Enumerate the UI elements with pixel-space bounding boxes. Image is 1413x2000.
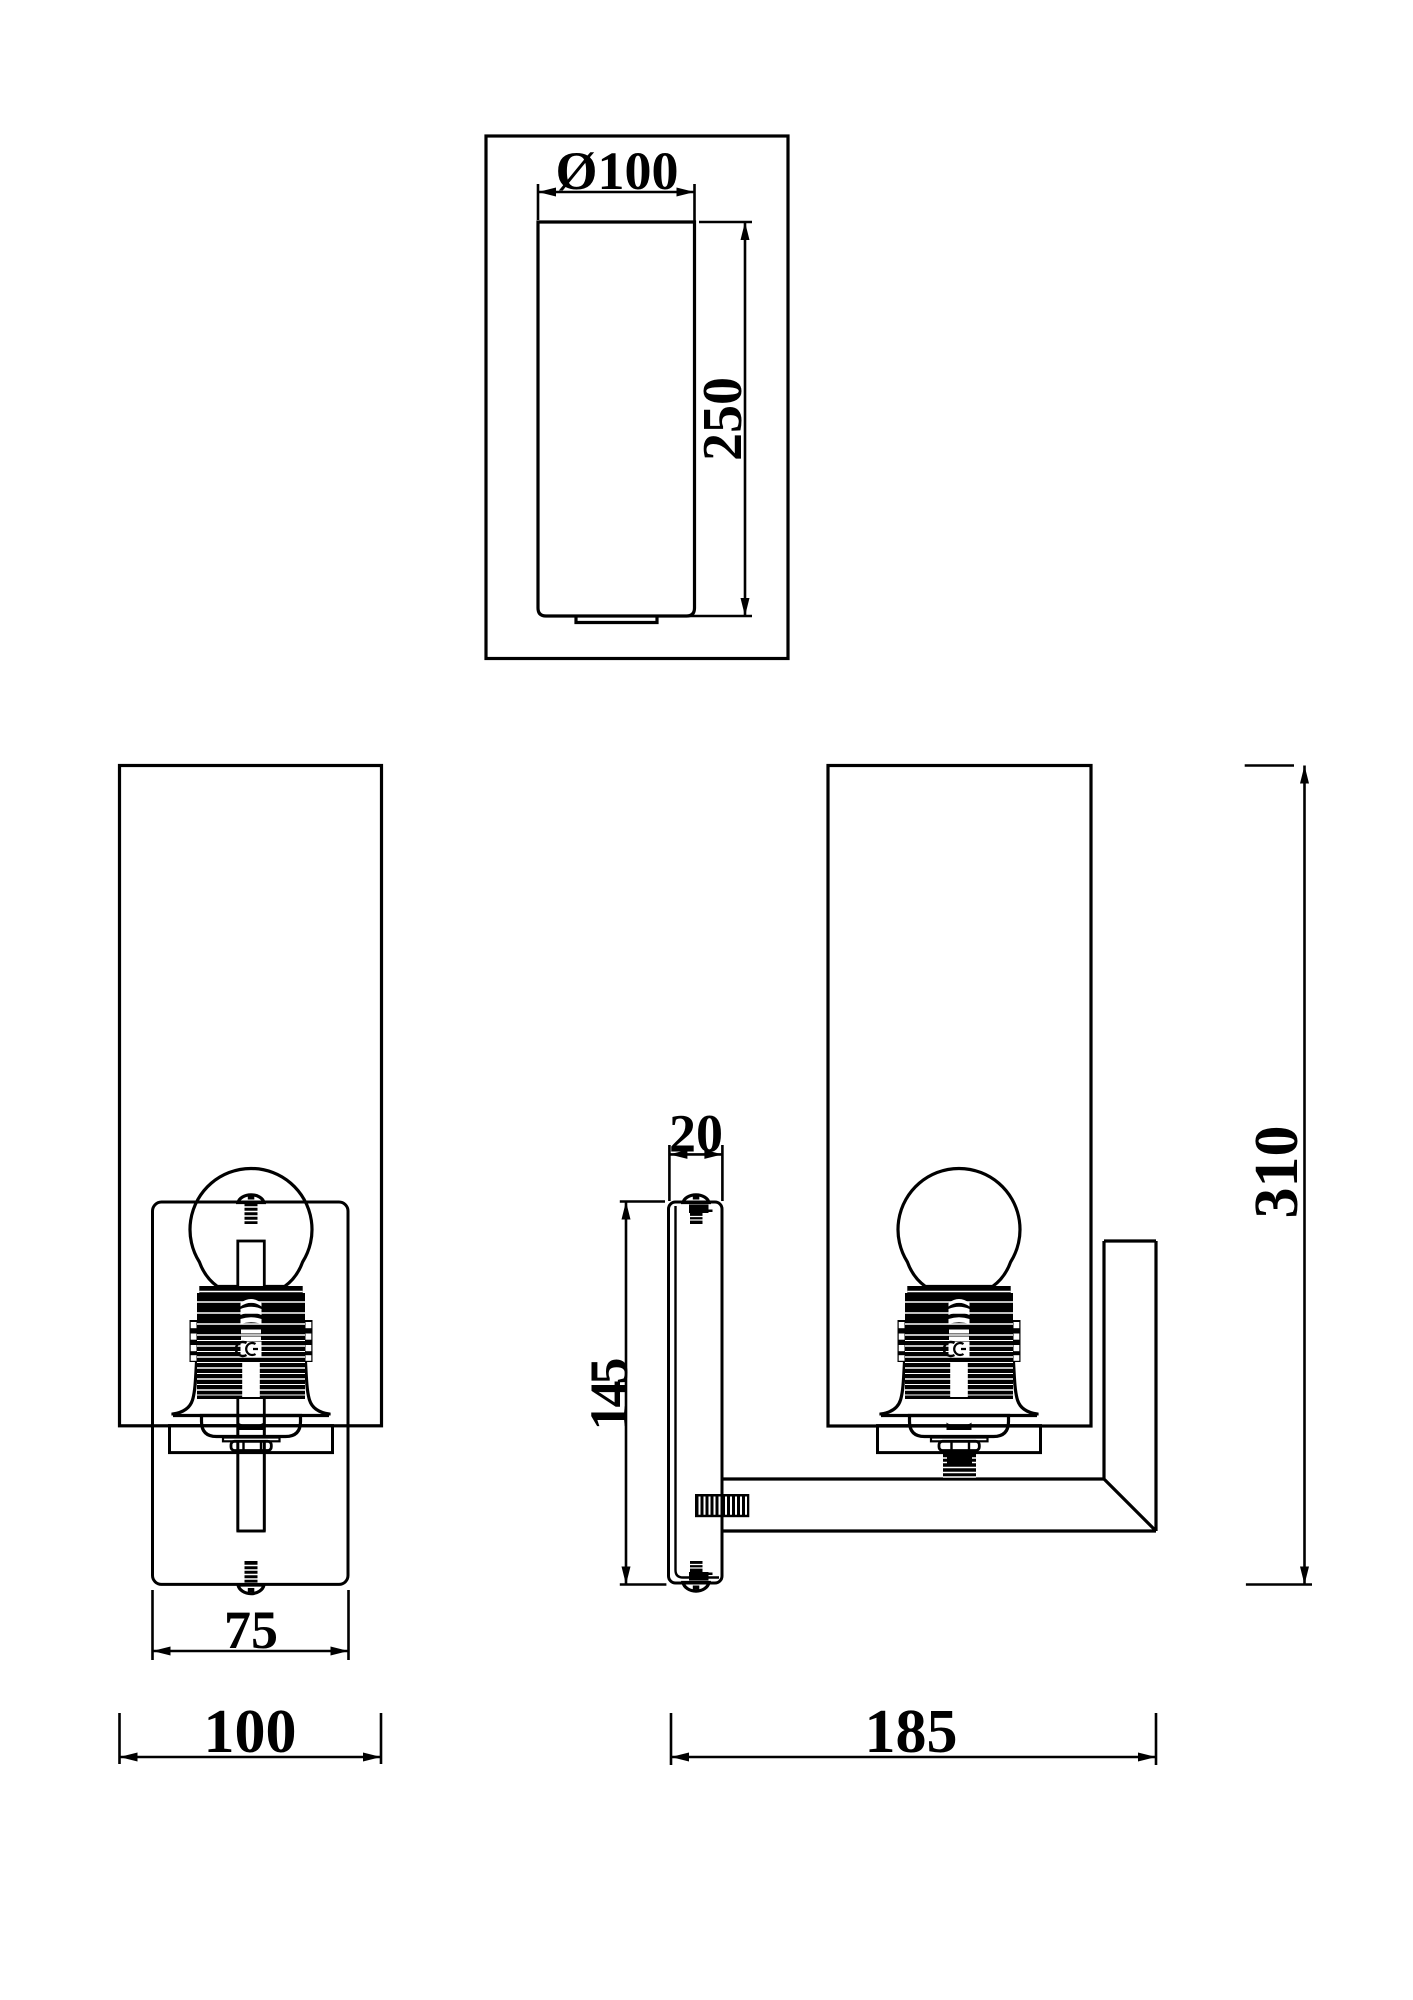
svg-text:100: 100 bbox=[204, 1698, 297, 1766]
svg-text:310: 310 bbox=[1243, 1126, 1311, 1219]
svg-text:185: 185 bbox=[865, 1698, 958, 1766]
svg-text:75: 75 bbox=[224, 1600, 278, 1660]
svg-text:145: 145 bbox=[579, 1359, 639, 1431]
svg-text:20: 20 bbox=[669, 1104, 723, 1164]
svg-text:250: 250 bbox=[692, 377, 754, 461]
svg-text:Ø100: Ø100 bbox=[555, 141, 678, 201]
